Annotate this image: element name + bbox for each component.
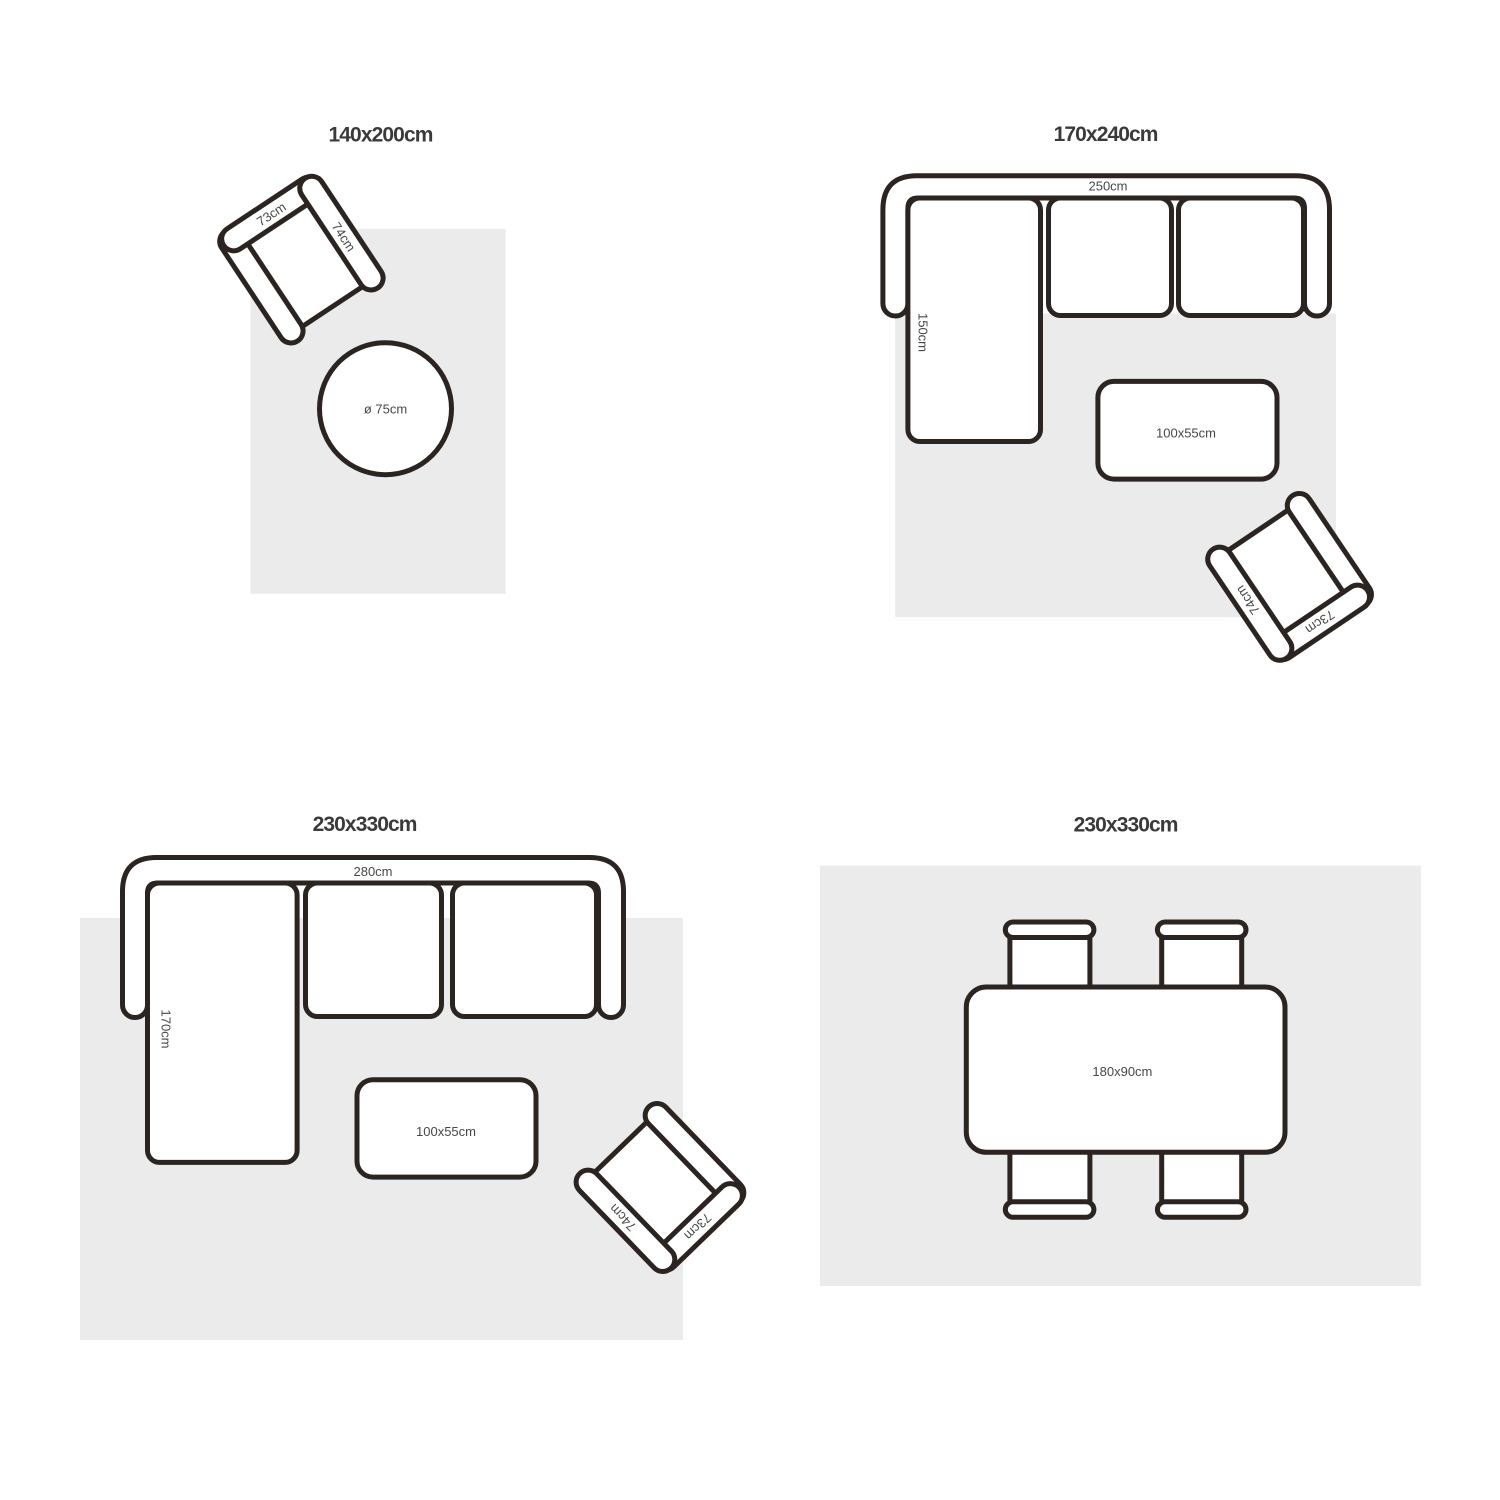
svg-text:230x330cm: 230x330cm — [1074, 814, 1178, 837]
svg-text:170cm: 170cm — [159, 1009, 174, 1048]
svg-text:100x55cm: 100x55cm — [416, 1124, 476, 1139]
svg-text:ø 75cm: ø 75cm — [364, 402, 407, 417]
svg-text:150cm: 150cm — [916, 313, 931, 352]
svg-text:180x90cm: 180x90cm — [1092, 1064, 1152, 1079]
svg-text:280cm: 280cm — [353, 864, 392, 879]
svg-text:140x200cm: 140x200cm — [328, 124, 432, 147]
svg-text:170x240cm: 170x240cm — [1054, 123, 1158, 146]
svg-text:230x330cm: 230x330cm — [313, 813, 417, 836]
svg-text:100x55cm: 100x55cm — [1156, 426, 1216, 441]
svg-text:250cm: 250cm — [1088, 179, 1127, 194]
